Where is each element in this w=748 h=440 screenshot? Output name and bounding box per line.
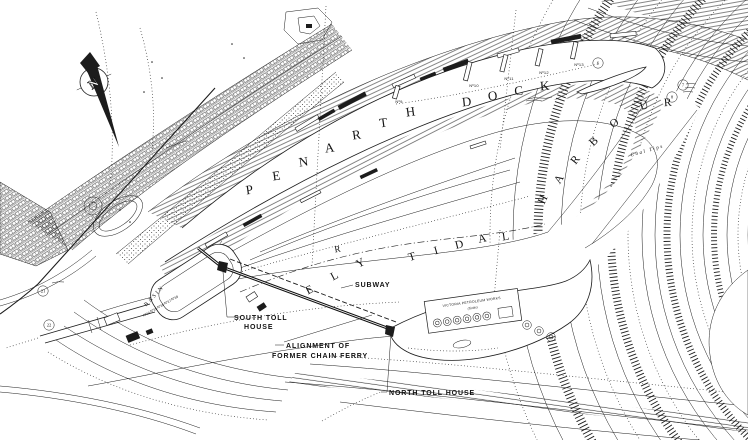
quay-number-3: Nº12 (539, 70, 549, 75)
road-line (0, 256, 96, 306)
circled-number-22: 22 (47, 323, 52, 328)
tree-dot (151, 61, 153, 63)
tiny-squiggle (683, 84, 696, 93)
map-letter-tidal-4: L (501, 231, 510, 244)
map-letter-dock-1: O (487, 88, 498, 104)
bottom-rail-line (340, 402, 700, 440)
map-canvas: VICTORIA PETROLEUM WORKS (Tanks) (0, 0, 748, 440)
dock-shed (360, 168, 378, 178)
tree-dot (143, 91, 145, 93)
map-letter-harbour-0: H (536, 193, 550, 206)
dock-shed (470, 141, 486, 149)
lock-channel-dotted (6, 338, 38, 348)
circled-number-21: 21 (41, 289, 46, 294)
north-toll-label: NORTH TOLL HOUSE (389, 390, 475, 397)
tree-dot (243, 57, 245, 59)
map-letter-harbour-2: R (569, 153, 583, 167)
river-pocket (709, 270, 748, 415)
bottom-band-fill (288, 373, 748, 432)
map-letter-harbour-4: O (608, 116, 621, 131)
map-letter-harbour-1: A (552, 172, 567, 186)
road-line (0, 392, 196, 434)
compass-rose: N (77, 52, 119, 147)
south-toll-label-line1: SOUTH TOLL (234, 315, 288, 322)
alignment-label-line1: ALIGNMENT OF (286, 343, 350, 350)
low-water-dotted (322, 392, 381, 421)
map-letter-harbour-3: B (587, 135, 601, 149)
survey-dotted (140, 28, 154, 150)
tree-dot (119, 209, 121, 211)
map-letter-dock-0: D (461, 94, 472, 110)
map-letter-tidal-2: D (454, 238, 465, 252)
subway-label: SUBWAY (355, 282, 390, 289)
map-letter-dock-3: K (539, 78, 550, 94)
quay-number-1: Nº10 (469, 83, 479, 88)
alignment-label-line2: FORMER CHAIN FERRY (272, 353, 368, 360)
south-toll-label-line2: HOUSE (244, 324, 273, 331)
quay-number-2: Nº11 (504, 76, 514, 81)
road-line (0, 386, 200, 428)
penarth-dock-map: VICTORIA PETROLEUM WORKS (Tanks) (0, 0, 748, 440)
map-letter-dock-2: C (514, 83, 524, 99)
bottom-railway-band (285, 356, 748, 440)
quay-number-4: Nº13 (574, 62, 584, 67)
map-letter-river_letter-0: R (334, 244, 342, 255)
circled-number-7: 7 (682, 83, 685, 88)
tree-dot (231, 43, 233, 45)
structure-block (306, 24, 312, 28)
quay-number-0: Nº9 (395, 99, 403, 104)
tree-dot (129, 221, 131, 223)
tree-dot (161, 77, 163, 79)
